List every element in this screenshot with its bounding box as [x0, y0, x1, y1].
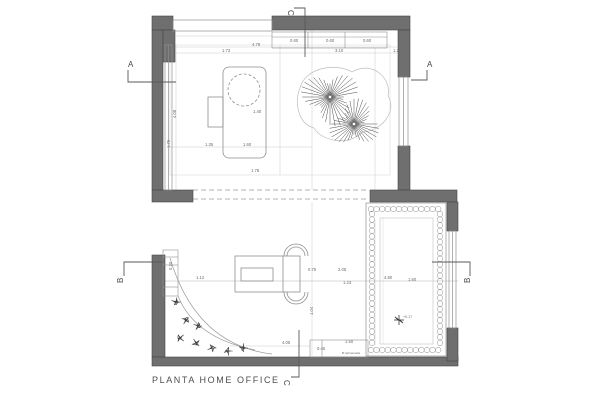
dimension-label: 1.12	[196, 275, 205, 280]
dimension-label: 3.10	[335, 48, 344, 53]
wall-left-upper	[152, 30, 163, 190]
dimension-label: 4.05	[282, 340, 291, 345]
shrub-scribble	[239, 343, 248, 351]
dimension-label: 1.23	[343, 280, 352, 285]
shrub-scribble	[208, 345, 216, 352]
dimension-label: 1.60	[243, 142, 252, 147]
dimension-label: 0.60	[326, 38, 335, 43]
wall-bottom	[152, 357, 458, 366]
section-marker-b: B	[463, 278, 472, 283]
dimension-label: 1.50	[345, 339, 354, 344]
wall-right-lower-a	[447, 202, 458, 231]
wall-left-foot	[152, 190, 193, 202]
dimension-label: 0.60	[363, 38, 372, 43]
dimension-label: 4.08	[172, 109, 177, 118]
dimension-label: 1.78	[251, 168, 260, 173]
wall-right-upper-b	[398, 146, 410, 190]
desk-chair	[228, 74, 260, 106]
section-marker-a: A	[128, 60, 134, 69]
shrub-scribble	[178, 335, 184, 342]
dimension-label: 0.30	[168, 261, 173, 270]
chair-bottom	[284, 292, 308, 304]
wall-right-upper-a	[398, 30, 410, 77]
table-group	[235, 244, 308, 304]
tree-plants	[301, 75, 379, 142]
desk-side-unit	[208, 97, 223, 127]
table-inset	[241, 268, 273, 281]
dimension-label: 1.40	[253, 109, 262, 114]
dashed-projection-lines	[193, 190, 368, 199]
shrub-scribble	[193, 339, 200, 346]
section-marker-c: C	[286, 10, 295, 16]
floor-plan-page: 0.600.600.604.781.733.101.201.401.351.60…	[0, 0, 600, 400]
dimension-label: 0.45	[317, 346, 326, 351]
dimension-label: 1.75	[166, 139, 171, 148]
dimension-label: 1.20	[393, 48, 402, 53]
section-line-c-bottom	[291, 330, 299, 377]
chair-top	[284, 244, 308, 256]
dimension-label: 4.78	[252, 42, 261, 47]
wall-right-lower-b	[447, 328, 458, 361]
garden-bed	[366, 203, 446, 356]
dimension-label: 1.04	[309, 306, 314, 315]
note-label: B.Aj/cascada	[342, 351, 360, 355]
section-line-a-right	[411, 70, 427, 80]
wall-middle	[370, 190, 457, 202]
section-marker-a: A	[427, 60, 433, 69]
dimension-label: 2.05	[338, 267, 347, 272]
corner-planter	[170, 258, 272, 354]
planter-hedge	[368, 206, 443, 353]
plan-title: PLANTA HOME OFFICE	[152, 375, 280, 385]
section-marker-b: B	[116, 278, 125, 283]
floor-plan-canvas: 0.600.600.604.781.733.101.201.401.351.60…	[0, 0, 600, 400]
wall-top-left	[152, 16, 173, 30]
dimension-label: 0.60	[290, 38, 299, 43]
dimension-label: 4.80	[384, 275, 393, 280]
dimension-label: 1.73	[222, 48, 231, 53]
dimension-label: 1.60	[408, 277, 417, 282]
dimension-label: 0.75	[308, 267, 317, 272]
level-marker-label: +0.17	[403, 315, 412, 319]
work-table	[235, 256, 300, 292]
dimension-label: 1.35	[205, 142, 214, 147]
section-marker-c: C	[282, 380, 291, 386]
window-top	[173, 20, 272, 31]
wall-top-right	[272, 16, 410, 30]
